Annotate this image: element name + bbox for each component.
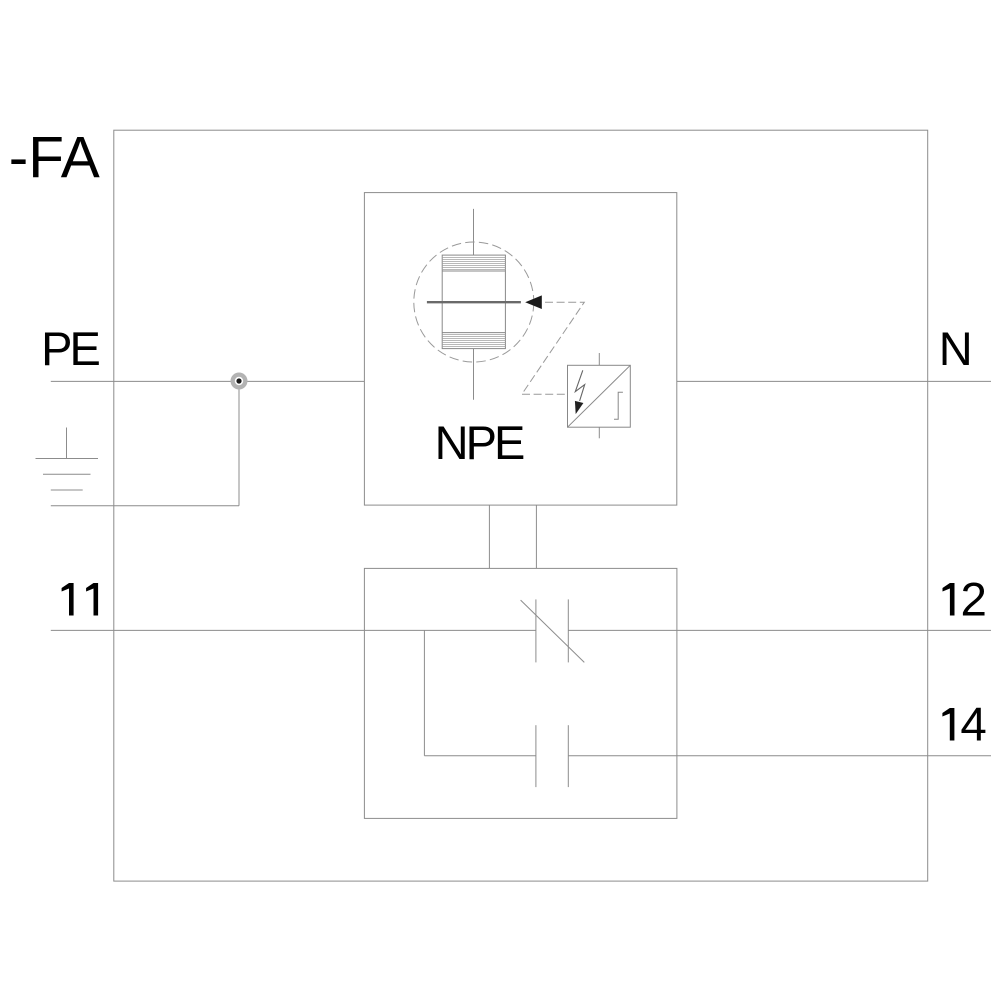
svg-text:NPE: NPE bbox=[435, 416, 526, 469]
svg-text:PE: PE bbox=[41, 322, 101, 375]
svg-text:N: N bbox=[939, 322, 973, 375]
svg-text:4: 4 bbox=[960, 699, 986, 752]
svg-text:2: 2 bbox=[961, 574, 987, 627]
svg-text:-FA: -FA bbox=[9, 126, 100, 191]
